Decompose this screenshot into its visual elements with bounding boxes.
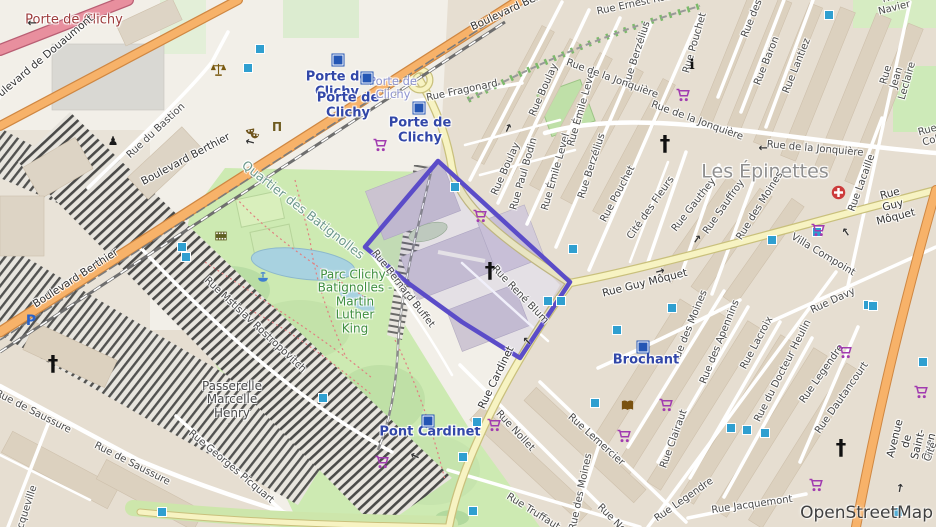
arrow-icon: → — [408, 449, 421, 463]
arrow-icon: → — [244, 135, 256, 148]
dot-icon — [472, 417, 482, 427]
dot-icon — [181, 252, 191, 262]
dot-icon — [318, 393, 328, 403]
dot-icon — [177, 242, 187, 252]
dot-icon — [667, 303, 677, 313]
dot-icon — [760, 428, 770, 438]
cross-icon: † — [660, 134, 671, 155]
cross-icon: † — [836, 438, 847, 459]
dot-icon — [255, 44, 265, 54]
metro-icon — [333, 55, 344, 66]
metro-icon — [414, 103, 425, 114]
person-icon: ♟ — [108, 135, 119, 147]
dot-icon — [612, 325, 622, 335]
dot-icon — [767, 235, 777, 245]
dot-icon — [243, 63, 253, 73]
arrow-icon: → — [27, 18, 36, 29]
map-icons: Π♟iP††††→→→→→→→→→→ — [0, 0, 936, 527]
dot-icon — [742, 425, 752, 435]
cross-icon: † — [48, 354, 59, 375]
dot-icon — [450, 182, 460, 192]
metro-icon — [362, 73, 373, 84]
metro-icon — [638, 342, 649, 353]
arrow-icon: → — [520, 334, 534, 348]
arrow-icon: → — [839, 225, 853, 239]
dot-icon — [468, 506, 478, 516]
arrow-icon: → — [894, 483, 906, 494]
cross-icon: † — [485, 261, 496, 282]
arrow-icon: → — [690, 232, 704, 246]
dot-icon — [868, 301, 878, 311]
metro-icon — [423, 416, 434, 427]
dot-icon — [918, 357, 928, 367]
dot-icon — [458, 452, 468, 462]
dot-icon — [824, 10, 834, 20]
gate-icon: Π — [272, 121, 282, 133]
info-icon: i — [689, 58, 694, 72]
arrow-icon: → — [501, 121, 515, 134]
dot-icon — [568, 244, 578, 254]
arrow-icon: → — [758, 143, 767, 154]
arrow-icon: → — [654, 264, 666, 277]
dot-icon — [157, 507, 167, 517]
dot-icon — [543, 296, 553, 306]
attribution-link[interactable]: OpenStreetMap — [800, 503, 933, 523]
dot-icon — [556, 296, 566, 306]
parking-icon: P — [26, 314, 36, 328]
map-viewport[interactable]: Porte de ClichyBoulevard de DouaumontBou… — [0, 0, 936, 527]
dot-icon — [590, 398, 600, 408]
dot-icon — [726, 423, 736, 433]
